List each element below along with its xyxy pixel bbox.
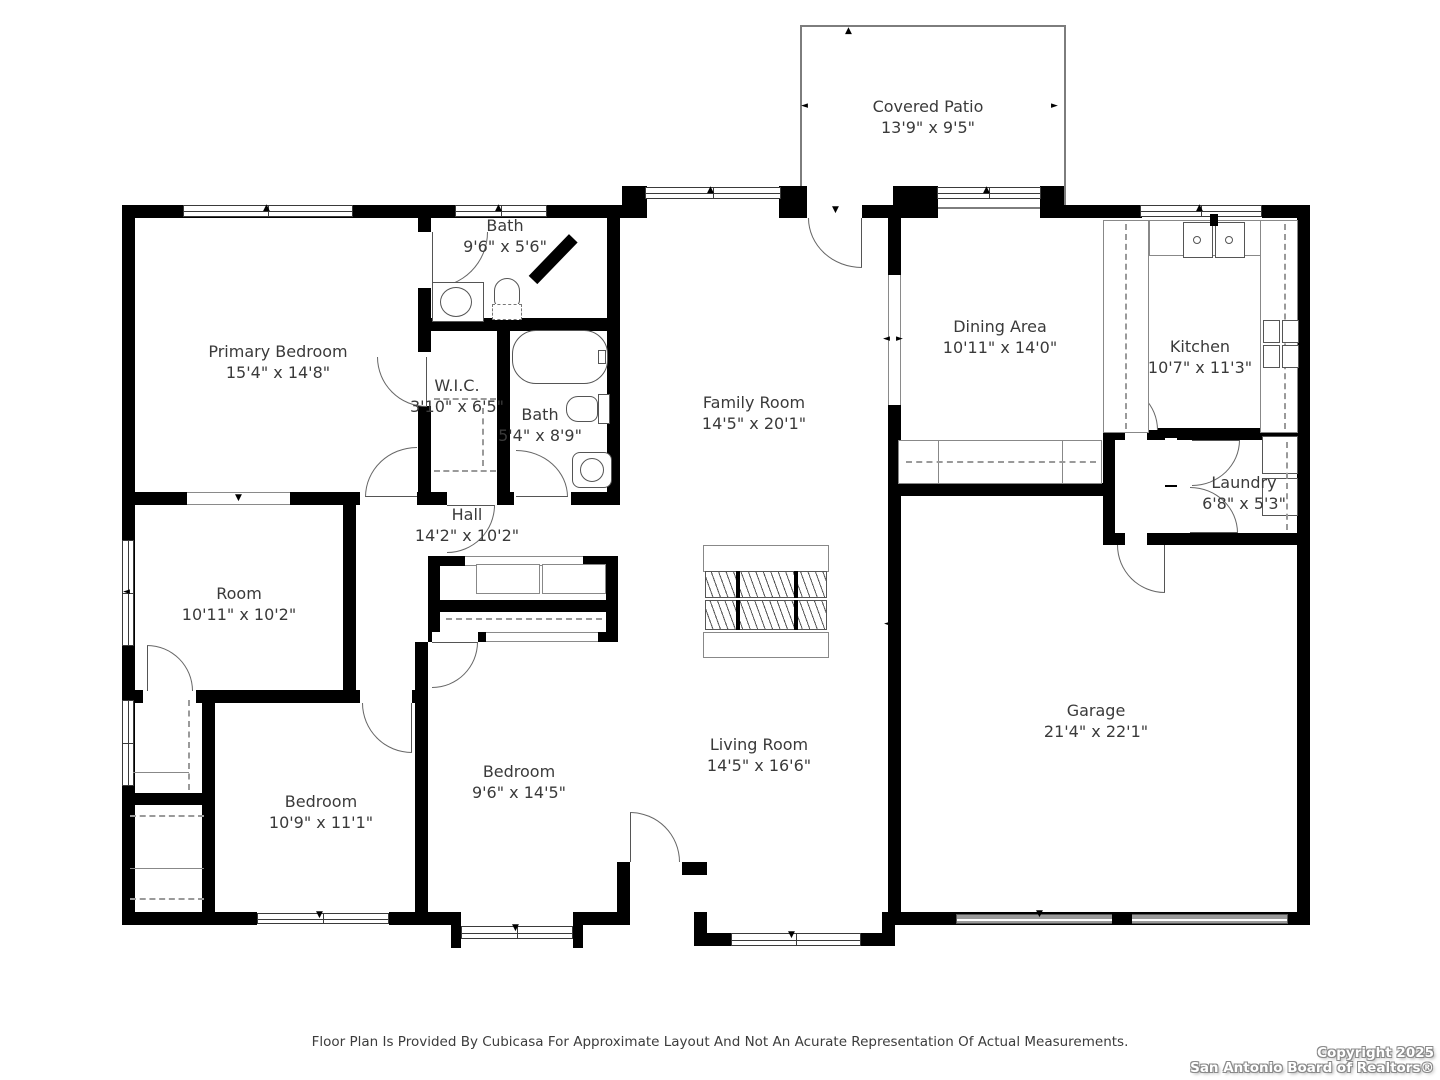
triangle-marker-icon: ▼	[832, 206, 839, 215]
room-label-bedroom-left: Bedroom 10'9" x 11'1"	[269, 791, 373, 833]
triangle-marker-icon: ▲	[983, 186, 990, 195]
room-dims: 21'4" x 22'1"	[1044, 721, 1148, 742]
closet-opening	[486, 632, 598, 642]
toilet-tank	[492, 304, 522, 320]
room-label-bedroom-middle: Bedroom 9'6" x 14'5"	[472, 761, 566, 803]
toilet-tank	[598, 394, 610, 424]
bathtub	[512, 330, 608, 384]
room-name: Family Room	[702, 392, 806, 413]
door-opening	[1165, 487, 1177, 533]
triangle-marker-icon: ▲	[263, 204, 270, 213]
room-name: W.I.C.	[410, 375, 504, 396]
room-label-wic: W.I.C. 3'10" x 6'5"	[410, 375, 504, 417]
closet-rod	[130, 898, 204, 900]
sink-faucet	[1210, 214, 1218, 226]
closet-shelf	[133, 772, 189, 773]
wall	[415, 642, 428, 912]
room-label-bath-2: Bath 5'4" x 8'9"	[498, 404, 582, 446]
room-name: Kitchen	[1148, 336, 1252, 357]
wall	[694, 912, 707, 946]
sink-basin	[580, 458, 604, 482]
closet-rod	[446, 618, 602, 620]
window	[122, 700, 134, 786]
room-label-laundry: Laundry 6'8" x 5'3"	[1202, 472, 1286, 514]
room-name: Living Room	[707, 734, 811, 755]
room-label-kitchen: Kitchen 10'7" x 11'3"	[1148, 336, 1252, 378]
room-name: Covered Patio	[873, 96, 984, 117]
wall	[1112, 912, 1132, 925]
wall	[122, 793, 215, 805]
wall	[606, 556, 618, 642]
triangle-marker-icon: ▼	[788, 931, 795, 940]
stove-burner	[1282, 345, 1299, 368]
room-dims: 10'11" x 14'0"	[943, 337, 1057, 358]
upper-cabinet-line	[1125, 224, 1127, 429]
window	[257, 913, 389, 924]
room-dims: 10'7" x 11'3"	[1148, 357, 1252, 378]
room-dims: 3'10" x 6'5"	[410, 396, 504, 417]
triangle-marker-icon: ►	[1300, 358, 1307, 367]
stove-burner	[1282, 320, 1299, 343]
door-arc	[808, 218, 862, 268]
wall	[1062, 205, 1142, 218]
fireplace-brick	[705, 571, 827, 598]
triangle-marker-icon: ▲	[707, 186, 714, 195]
room-label-hall: Hall 14'2" x 10'2"	[415, 504, 519, 546]
wall	[900, 483, 1105, 496]
triangle-marker-icon: ▼	[316, 911, 323, 920]
tub-faucet	[598, 350, 606, 364]
fireplace-brick	[705, 600, 827, 630]
cabinet-line	[1286, 442, 1288, 530]
wall	[1147, 533, 1177, 545]
room-dims: 15'4" x 14'8"	[208, 362, 347, 383]
room-label-family-room: Family Room 14'5" x 20'1"	[702, 392, 806, 434]
door-arc	[432, 642, 478, 688]
washer	[1262, 436, 1298, 474]
wall	[451, 912, 461, 948]
fireplace-hearth	[703, 545, 829, 572]
triangle-marker-icon: ▼	[512, 924, 519, 933]
fireplace-tick	[794, 571, 798, 598]
wall	[343, 492, 356, 703]
fireplace-tick	[736, 571, 740, 598]
wall	[1040, 186, 1064, 218]
sink-basin	[440, 287, 472, 317]
triangle-marker-icon: ◄	[123, 588, 130, 597]
room-label-garage: Garage 21'4" x 22'1"	[1044, 700, 1148, 742]
sink-drain	[1225, 236, 1233, 244]
door-opening	[1125, 533, 1147, 545]
fireplace-tick	[736, 600, 740, 630]
room-name: Primary Bedroom	[208, 341, 347, 362]
floor-plan: ▲ ▲ ▲ ▼ ▲ ▲ ▲ ◄ ► ◄ ▼ ◄ ► ▼ ▼ ▼ ▼ ◄ ► Co…	[0, 0, 1440, 1080]
room-label-covered-patio: Covered Patio 13'9" x 9'5"	[873, 96, 984, 138]
wall	[428, 556, 440, 642]
room-name: Dining Area	[943, 316, 1057, 337]
room-label-living-room: Living Room 14'5" x 16'6"	[707, 734, 811, 776]
room-name: Bath	[463, 215, 547, 236]
door-arc	[516, 450, 568, 497]
room-name: Laundry	[1202, 472, 1286, 493]
room-name: Garage	[1044, 700, 1148, 721]
triangle-marker-icon: ◄	[801, 102, 808, 111]
triangle-marker-icon: ◄	[883, 335, 890, 344]
triangle-marker-icon: ▼	[1036, 910, 1043, 919]
room-dims: 14'5" x 20'1"	[702, 413, 806, 434]
fireplace-tick	[794, 600, 798, 630]
triangle-marker-icon: ►	[1051, 102, 1058, 111]
room-dims: 14'2" x 10'2"	[415, 525, 519, 546]
sink-drain	[1193, 236, 1201, 244]
room-name: Bedroom	[472, 761, 566, 782]
wall	[583, 912, 620, 925]
window	[731, 933, 861, 946]
copyright-line-2: San Antonio Board of Realtors®	[1190, 1061, 1434, 1076]
door-opening	[418, 232, 431, 288]
room-label-bath-1: Bath 9'6" x 5'6"	[463, 215, 547, 257]
room-dims: 6'8" x 5'3"	[1202, 493, 1286, 514]
wall	[1103, 533, 1125, 545]
room-dims: 13'9" x 9'5"	[873, 117, 984, 138]
stove-burner	[1263, 320, 1280, 343]
fireplace-hearth	[703, 632, 829, 658]
closet-shelf	[542, 564, 606, 594]
closet-rod	[188, 700, 190, 790]
triangle-marker-icon: ►	[896, 335, 903, 344]
triangle-marker-icon: ▼	[235, 494, 242, 503]
door-opening	[630, 862, 682, 875]
wall	[122, 912, 257, 925]
room-label-dining-area: Dining Area 10'11" x 14'0"	[943, 316, 1057, 358]
door-arc	[147, 645, 193, 691]
copyright-text: Copyright 2025 San Antonio Board of Real…	[1190, 1046, 1434, 1076]
door-opening	[360, 690, 412, 703]
room-dims: 10'9" x 11'1"	[269, 812, 373, 833]
room-label-primary-bedroom: Primary Bedroom 15'4" x 14'8"	[208, 341, 347, 383]
wall	[389, 912, 451, 925]
wall	[428, 600, 618, 612]
wall	[707, 933, 731, 946]
room-dims: 9'6" x 14'5"	[472, 782, 566, 803]
wall	[888, 218, 901, 275]
wall	[893, 186, 938, 218]
room-dims: 10'11" x 10'2"	[182, 604, 296, 625]
room-dims: 14'5" x 16'6"	[707, 755, 811, 776]
closet-shelf	[476, 564, 540, 594]
room-name: Room	[182, 583, 296, 604]
wall	[622, 186, 647, 218]
closet-rod	[434, 470, 496, 472]
triangle-marker-icon: ◄	[884, 620, 891, 629]
door-arc	[1117, 545, 1165, 593]
copyright-line-1: Copyright 2025	[1190, 1046, 1434, 1061]
wall	[202, 703, 215, 912]
door-arc	[362, 703, 412, 753]
wall	[1177, 533, 1310, 545]
room-name: Bedroom	[269, 791, 373, 812]
room-dims: 9'6" x 5'6"	[463, 236, 547, 257]
wall	[573, 912, 583, 948]
room-dims: 5'4" x 8'9"	[498, 425, 582, 446]
wall	[779, 186, 807, 218]
wall	[1103, 428, 1115, 545]
sideboard-line	[906, 461, 1096, 463]
door-arc	[630, 812, 680, 862]
closet-shelf	[130, 868, 204, 869]
wall	[861, 933, 885, 946]
triangle-marker-icon: ▲	[1196, 204, 1203, 213]
triangle-marker-icon: ▲	[495, 204, 502, 213]
room-name: Bath	[498, 404, 582, 425]
door-opening	[1165, 438, 1177, 485]
door-opening	[432, 632, 478, 642]
stove-burner	[1263, 345, 1280, 368]
room-name: Hall	[415, 504, 519, 525]
door-arc	[365, 447, 417, 497]
wall	[1297, 205, 1310, 925]
room-label-room: Room 10'11" x 10'2"	[182, 583, 296, 625]
triangle-marker-icon: ▲	[845, 27, 852, 36]
closet-rod	[130, 815, 204, 817]
